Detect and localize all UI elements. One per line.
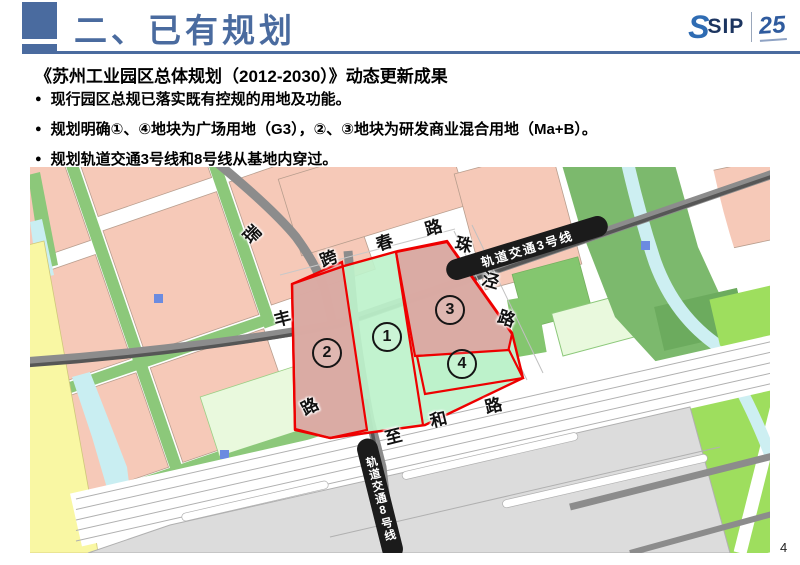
bullet-item-3: 规划轨道交通3号线和8号线从基地内穿过。 [35,148,785,169]
slide: 二、已有规划 S SIP 25 《苏州工业园区总体规划（2012-2030）》动… [0,0,800,565]
sip-logo-text: SIP [707,15,744,39]
title-accent-bar [22,44,57,51]
page-title: 二、已有规划 [74,4,296,52]
plot-marker-3: 3 [435,295,465,325]
plot-marker-2: 2 [312,338,342,368]
logo-divider [751,12,752,42]
plot-marker-1: 1 [372,322,402,352]
land-use-map: 瑞 跨 春 路 珠 泾 路 丰 路 至 和 路 1 2 3 4 轨道交通3号线 … [30,167,770,553]
sip-logo-swirl-icon: S [688,11,709,43]
bullet-item-2: 规划明确①、④地块为广场用地（G3），②、③地块为研发商业混合用地（Ma+B）。 [35,118,785,139]
water-feature-dot-2 [641,241,650,250]
water-feature-dot-3 [220,450,229,459]
anniversary-25-mark: 25 [758,12,787,42]
section-heading: 《苏州工业园区总体规划（2012-2030）》动态更新成果 [35,62,448,87]
bullet-list: 现行园区总规已落实既有控规的用地及功能。 规划明确①、④地块为广场用地（G3），… [35,88,785,178]
water-feature-dot [154,294,163,303]
header-divider [22,51,800,54]
bullet-item-1: 现行园区总规已落实既有控规的用地及功能。 [35,88,785,109]
map-graphic [30,167,770,553]
title-accent-square [22,2,57,39]
plot-marker-4: 4 [447,349,477,379]
page-number: 4 [780,540,787,555]
sip-logo: S SIP 25 [688,8,786,46]
